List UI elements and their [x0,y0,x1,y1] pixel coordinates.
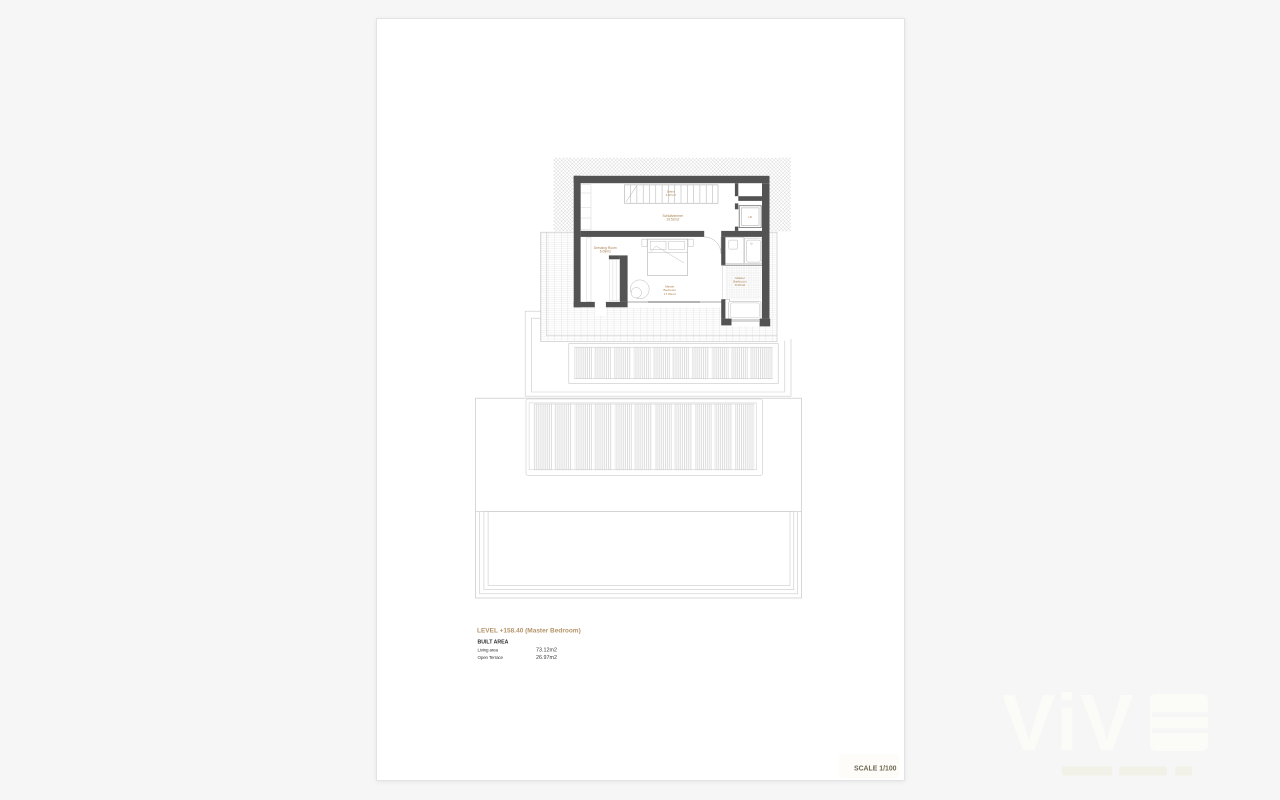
svg-text:3.97m2: 3.97m2 [666,193,677,197]
svg-text:ViV: ViV [1002,678,1136,767]
svg-text:8.26m2: 8.26m2 [735,283,746,287]
svg-text:6.08m2: 6.08m2 [600,250,611,254]
svg-text:Lift: Lift [748,215,752,219]
svg-text:73.12m2: 73.12m2 [536,647,557,653]
svg-text:19.52m2: 19.52m2 [666,218,679,222]
svg-text:Living area: Living area [478,647,499,652]
svg-text:BUILT AREA: BUILT AREA [478,640,509,646]
svg-text:Open Terrace: Open Terrace [478,655,504,660]
svg-text:SCALE 1/100: SCALE 1/100 [854,765,897,772]
svg-text:26.97m2: 26.97m2 [536,655,557,661]
svg-text:LEVEL +158.40 (Master Bedroom): LEVEL +158.40 (Master Bedroom) [477,627,581,634]
svg-text:17.04m2: 17.04m2 [664,292,676,296]
